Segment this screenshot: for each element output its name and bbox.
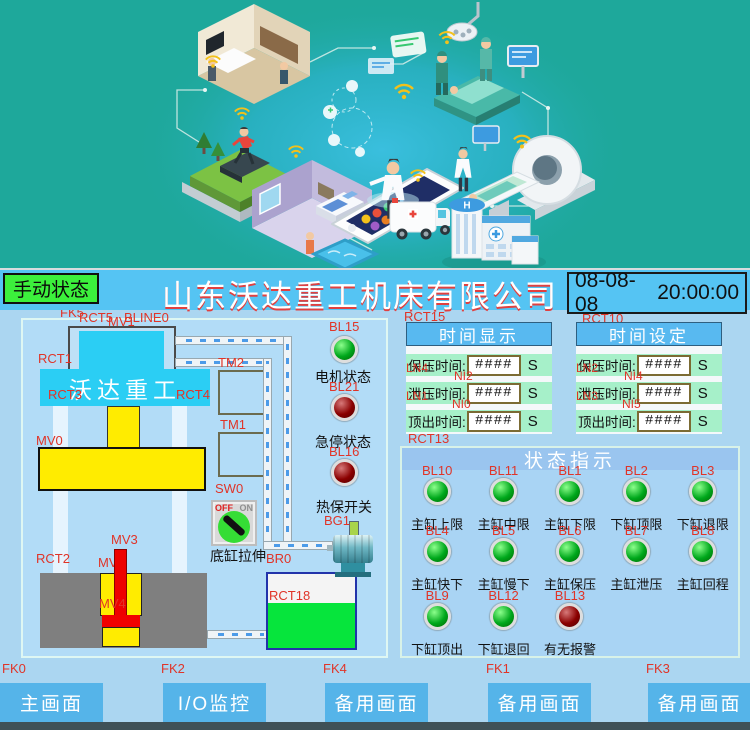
- hmi-screen: 手动状态 山东沃达重工机床有限公司 08-08-08 20:00:00 沃达重工…: [0, 268, 750, 730]
- press-head-fill: [79, 331, 164, 370]
- tm-box-lower: [218, 432, 267, 477]
- time-setting-panel: 时间设定 保压时间: #### S 泄压时间: #### S 顶出时间: ###…: [576, 322, 722, 434]
- motor-foot: [335, 572, 371, 577]
- tm-box-upper: [218, 370, 267, 415]
- time-unit: S: [528, 357, 538, 374]
- thermal-switch-label: 热保开关: [316, 500, 372, 514]
- status-cell: BL12 下缸退回: [472, 589, 536, 658]
- io-monitor-button[interactable]: I/O监控: [163, 683, 266, 722]
- status-label: 下缸顶出: [411, 639, 463, 658]
- status-label: 有无报警: [544, 639, 596, 658]
- status-cell: BL5 主缸慢下: [472, 524, 536, 593]
- tag-label: SW0: [215, 482, 243, 495]
- pipe: [283, 336, 292, 543]
- time-setting-input[interactable]: ####: [637, 383, 691, 404]
- tag-label: BL7: [625, 524, 648, 537]
- time-unit: S: [698, 357, 708, 374]
- time-value-box: ####: [467, 383, 521, 404]
- status-indication-panel: 状态指示 BL10 主缸上限 BL11 主缸中限 BL1 主缸下限 BL2 下缸…: [400, 446, 740, 658]
- tag-label: RCT4: [176, 388, 210, 401]
- tag-label: TM1: [220, 418, 246, 431]
- time-value-box: ####: [467, 411, 521, 432]
- tag-label: NI5: [622, 398, 641, 411]
- date-text: 08-08-08: [575, 269, 657, 317]
- spare-screen-button-3[interactable]: 备用画面: [648, 683, 750, 722]
- tag-label: BL10: [422, 464, 452, 477]
- bottom-cylinder-label: 底缸拉伸: [210, 549, 266, 563]
- time-unit: S: [698, 385, 708, 402]
- time-setting-title: 时间设定: [576, 322, 722, 346]
- main-screen-button[interactable]: 主画面: [0, 683, 103, 722]
- helipad-letter: H: [463, 201, 470, 212]
- status-cell: BL13 有无报警: [538, 589, 602, 658]
- time-text: 20:00:00: [657, 281, 739, 305]
- time-display-title: 时间显示: [406, 322, 552, 346]
- press-head-box: [68, 326, 176, 372]
- tag-label: FK1: [486, 662, 510, 675]
- tag-label: BL3: [691, 464, 714, 477]
- tag-label: FK2: [161, 662, 185, 675]
- pipe: [263, 358, 272, 543]
- tag-label: BR0: [266, 552, 291, 565]
- status-row: BL9 下缸顶出 BL12 下缸退回 BL13 有无报警: [404, 589, 736, 658]
- press-ram-rod: [107, 406, 140, 448]
- brand-label: 沃达重工: [69, 371, 181, 405]
- status-cell: BL7 主缸泄压: [604, 524, 668, 593]
- mode-status-button[interactable]: 手动状态: [3, 273, 99, 304]
- switch-on-label: ON: [240, 503, 254, 513]
- status-label: 下缸退回: [478, 639, 530, 658]
- tag-label: BG1: [324, 514, 350, 527]
- tag-label: NI2: [454, 370, 473, 383]
- indicator-led: [623, 538, 650, 565]
- iot-medical-illustration: H: [0, 0, 750, 268]
- tag-label: LN3: [576, 390, 598, 403]
- pipe: [263, 541, 333, 550]
- indicator-led: [556, 538, 583, 565]
- time-setting-input[interactable]: ####: [637, 411, 691, 432]
- motor-fault-led: [331, 394, 358, 421]
- time-unit: S: [528, 413, 538, 430]
- status-cell: BL4 主缸快下: [405, 524, 469, 593]
- tag-label: LN2: [576, 362, 598, 375]
- indicator-led: [424, 478, 451, 505]
- indicator-led: [556, 478, 583, 505]
- motor-body: [333, 535, 373, 563]
- tag-label: RCT2: [36, 552, 70, 565]
- tag-label: BL8: [691, 524, 714, 537]
- tag-label: RCT13: [408, 432, 449, 445]
- tag-label: FK4: [323, 662, 347, 675]
- tag-label: BL12: [488, 589, 518, 602]
- indicator-led: [689, 478, 716, 505]
- tag-label: MV4: [99, 597, 126, 610]
- tag-label: BL5: [492, 524, 515, 537]
- tag-label: MV0: [36, 434, 63, 447]
- tag-label: BL13: [555, 589, 585, 602]
- tag-label: FK0: [2, 662, 26, 675]
- tag-label: BL15: [329, 320, 359, 333]
- tag-label: BL16: [329, 445, 359, 458]
- rotary-switch[interactable]: OFF ON: [211, 500, 257, 546]
- tag-label: BL2: [625, 464, 648, 477]
- spacer: [671, 589, 735, 658]
- tag-label: MV3: [111, 533, 138, 546]
- time-unit: S: [528, 385, 538, 402]
- indicator-led: [490, 603, 517, 630]
- time-value-box: ####: [467, 355, 521, 376]
- indicator-led: [689, 538, 716, 565]
- bottom-cylinder-base: [102, 627, 140, 647]
- indicator-led: [424, 538, 451, 565]
- oil-level-fill: [268, 603, 355, 648]
- tag-label: BL4: [426, 524, 449, 537]
- indicator-led: [490, 478, 517, 505]
- oil-tank: [266, 572, 357, 650]
- tag-label: BL1: [558, 464, 581, 477]
- status-cell: BL9 下缸顶出: [405, 589, 469, 658]
- tag-label: RCT1: [38, 352, 72, 365]
- tag-label: BL9: [426, 589, 449, 602]
- pipe: [207, 630, 267, 639]
- spare-screen-button-2[interactable]: 备用画面: [488, 683, 591, 722]
- spare-screen-button-1[interactable]: 备用画面: [325, 683, 428, 722]
- motor-status-led: [331, 336, 358, 363]
- company-title: 山东沃达重工机床有限公司: [150, 271, 570, 316]
- tag-label: NI0: [452, 398, 471, 411]
- tag-label: NI4: [624, 370, 643, 383]
- tag-label: LN1: [406, 390, 428, 403]
- indicator-led: [556, 603, 583, 630]
- spacer: [604, 589, 668, 658]
- time-display-panel: 时间显示 保压时间: #### S 泄压时间: #### S 顶出时间: ###…: [406, 322, 552, 434]
- bottom-cylinder-piston: [102, 615, 140, 627]
- time-unit: S: [698, 413, 708, 430]
- motor-pump: [327, 521, 379, 577]
- time-setting-input[interactable]: ####: [637, 355, 691, 376]
- indicator-led: [490, 538, 517, 565]
- press-ram-beam: [38, 447, 206, 491]
- tag-label: FK3: [646, 662, 670, 675]
- tag-label: LN4: [406, 362, 428, 375]
- status-row: BL4 主缸快下 BL5 主缸慢下 BL6 主缸保压 BL7 主缸泄压 BL8: [404, 524, 736, 593]
- time-row: 顶出时间: #### S: [406, 410, 552, 432]
- estop-led: [331, 459, 358, 486]
- indicator-led: [623, 478, 650, 505]
- tag-label: BL21: [329, 380, 359, 393]
- indicator-led: [424, 603, 451, 630]
- tag-label: TM2: [218, 356, 244, 369]
- time-row: 顶出时间: #### S: [576, 410, 722, 432]
- motor-base: [341, 563, 365, 572]
- status-cell: BL6 主缸保压: [538, 524, 602, 593]
- pipe: [175, 336, 292, 345]
- tag-label: BL6: [558, 524, 581, 537]
- datetime-display: 08-08-08 20:00:00: [567, 272, 747, 314]
- tag-label: BL11: [489, 464, 518, 477]
- tag-label: RCT18: [269, 589, 310, 602]
- tag-label: RCT3: [48, 388, 82, 401]
- status-cell: BL8 主缸回程: [671, 524, 735, 593]
- time-row-label: 顶出时间:: [578, 411, 636, 431]
- time-row-label: 顶出时间:: [408, 411, 466, 431]
- bottom-strip: [0, 722, 750, 730]
